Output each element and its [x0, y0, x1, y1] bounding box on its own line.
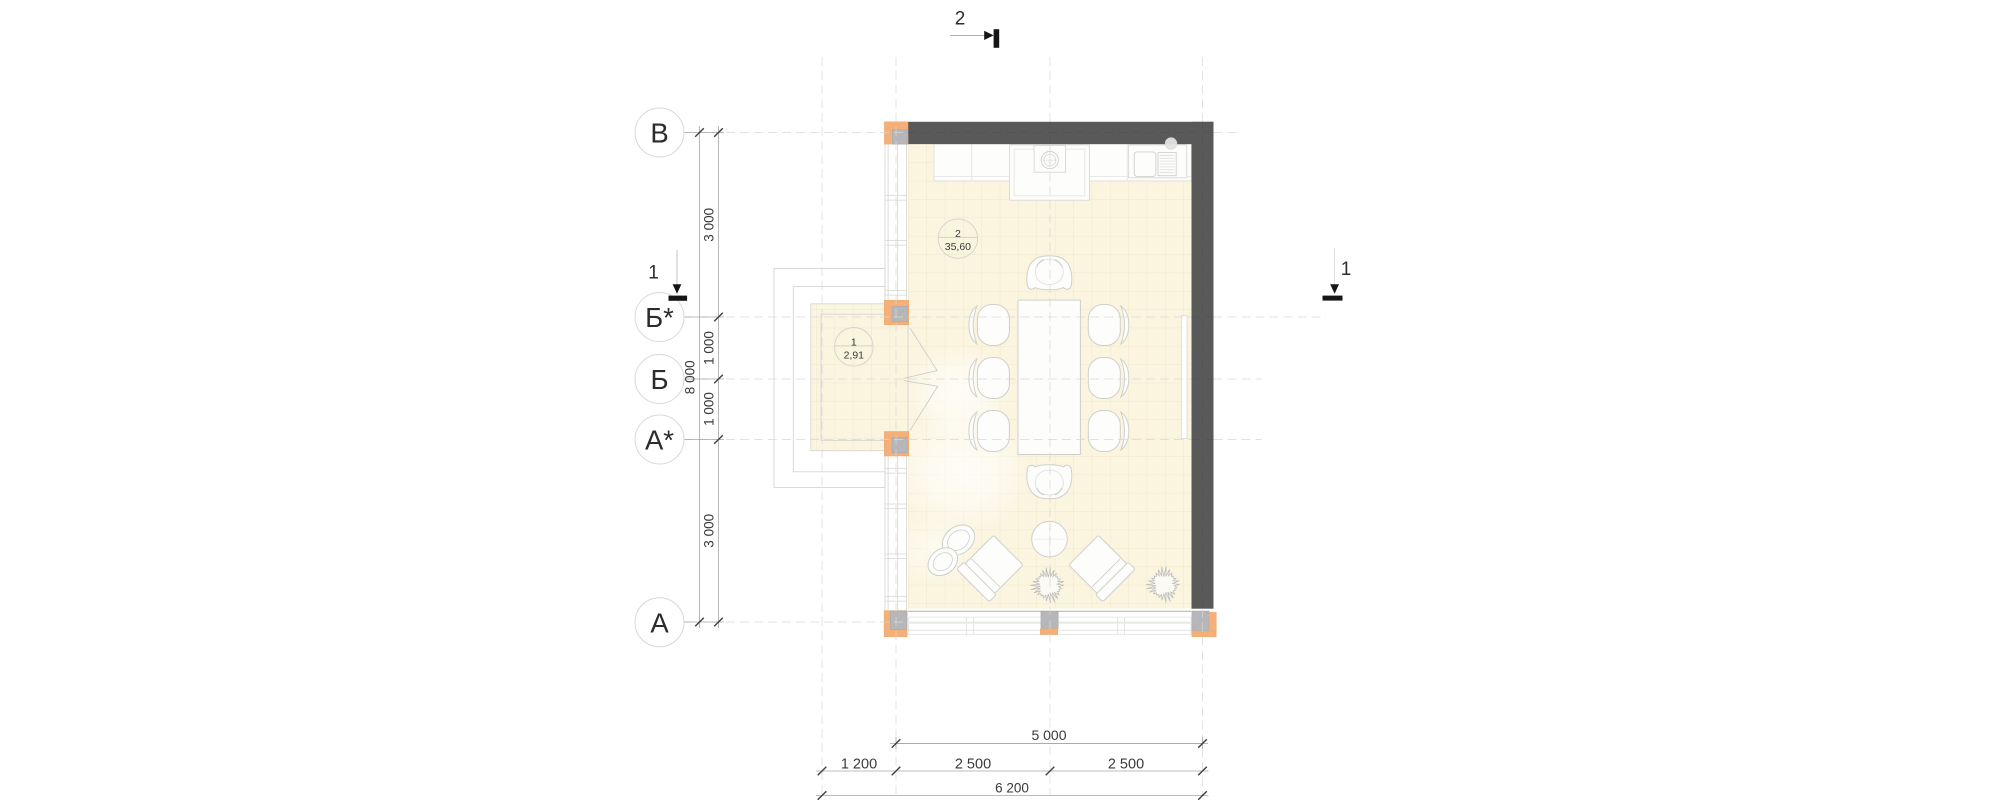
svg-text:А*: А* — [645, 425, 674, 456]
svg-text:2: 2 — [955, 9, 966, 30]
svg-text:А: А — [650, 607, 669, 638]
svg-text:1: 1 — [1341, 259, 1352, 280]
svg-text:5 000: 5 000 — [1031, 727, 1066, 743]
svg-text:3 000: 3 000 — [702, 208, 717, 242]
svg-text:1 000: 1 000 — [702, 331, 717, 365]
svg-text:1 200: 1 200 — [841, 757, 877, 773]
svg-text:1 000: 1 000 — [702, 392, 717, 426]
svg-text:Б*: Б* — [645, 302, 674, 333]
svg-text:В: В — [650, 118, 668, 149]
svg-text:3 000: 3 000 — [702, 514, 717, 548]
svg-text:6 200: 6 200 — [995, 780, 1029, 795]
svg-text:1: 1 — [851, 336, 857, 348]
svg-text:35,60: 35,60 — [945, 241, 971, 253]
svg-text:2: 2 — [955, 228, 961, 240]
svg-text:2 500: 2 500 — [955, 757, 991, 773]
svg-text:1: 1 — [648, 263, 659, 284]
svg-text:2,91: 2,91 — [844, 349, 865, 361]
svg-text:8 000: 8 000 — [683, 360, 698, 394]
svg-text:Б: Б — [650, 364, 668, 395]
svg-text:2 500: 2 500 — [1108, 757, 1144, 773]
